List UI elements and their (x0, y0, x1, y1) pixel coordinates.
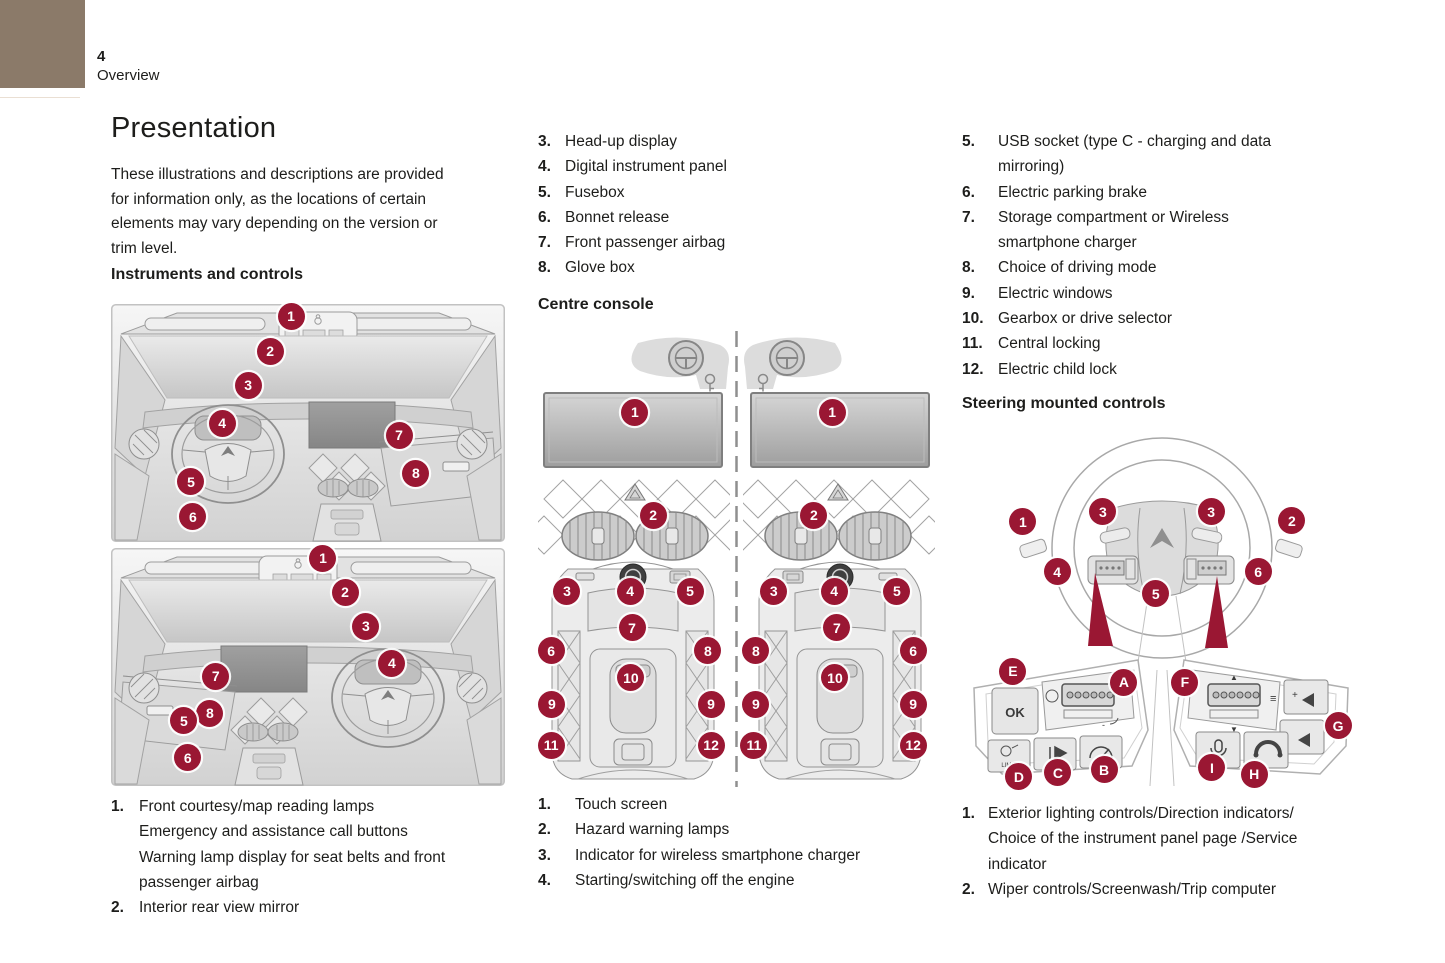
callout-8: 8 (196, 700, 223, 727)
callout-12: 12 (698, 732, 725, 759)
callout-7: 7 (823, 614, 850, 641)
legend-item: 2.Hazard warning lamps (538, 817, 938, 842)
callout-5: 5 (883, 578, 910, 605)
callout-2: 2 (332, 579, 359, 606)
console-heading: Centre console (538, 296, 654, 314)
legend-item: 3.Indicator for wireless smartphone char… (538, 843, 938, 868)
callout-4: 4 (1044, 558, 1071, 585)
legend-item: 2.Wiper controls/Screenwash/Trip compute… (962, 877, 1362, 902)
callout-9: 9 (900, 691, 927, 718)
corner-block (0, 0, 85, 88)
steering-figure: OK + - LIMIT (962, 430, 1360, 788)
callout-3: 3 (1089, 498, 1116, 525)
callout-12: 12 (900, 732, 927, 759)
callout-3: 3 (352, 613, 379, 640)
callout-3: 3 (553, 578, 580, 605)
callout-6: 6 (1245, 558, 1272, 585)
callout-8: 8 (694, 637, 721, 664)
callout-2: 2 (640, 502, 667, 529)
callout-5: 5 (177, 468, 204, 495)
legend-item: 4.Starting/switching off the engine (538, 868, 938, 893)
console-legend-5-12: 5.USB socket (type C - charging and data… (962, 129, 1362, 382)
callout-4: 4 (209, 410, 236, 437)
callout-6: 6 (538, 637, 565, 664)
instruments-heading: Instruments and controls (111, 266, 303, 284)
steering-legend: 1.Exterior lighting controls/Direction i… (962, 801, 1362, 902)
console-figure: 12345768109911121234578610991112 (538, 331, 935, 787)
callout-5: 5 (1142, 580, 1169, 607)
callout-3: 3 (1198, 498, 1225, 525)
page-number: 4 (97, 48, 105, 65)
legend-item: 7.Front passenger airbag (538, 230, 938, 255)
callout-2: 2 (257, 338, 284, 365)
callout-8: 8 (742, 637, 769, 664)
manual-page: 4 Overview Presentation These illustrati… (0, 0, 1445, 963)
callout-1: 1 (621, 399, 648, 426)
legend-item: 7.Storage compartment or Wireless smartp… (962, 205, 1362, 256)
callout-11: 11 (538, 732, 565, 759)
callout-A: A (1110, 669, 1137, 696)
callout-5: 5 (170, 707, 197, 734)
callout-4: 4 (378, 650, 405, 677)
callout-3: 3 (235, 372, 262, 399)
callout-H: H (1241, 761, 1268, 788)
callout-7: 7 (202, 663, 229, 690)
callout-E: E (999, 658, 1026, 685)
instruments-legend-1-2: 1.Front courtesy/map reading lamps Emerg… (111, 794, 511, 920)
legend-item: 8.Glove box (538, 255, 938, 280)
legend-item: 6.Bonnet release (538, 205, 938, 230)
console-callouts: 12345768109911121234578610991112 (538, 331, 935, 787)
callout-5: 5 (677, 578, 704, 605)
callout-1: 1 (278, 303, 305, 330)
legend-item: 1.Exterior lighting controls/Direction i… (962, 801, 1362, 877)
callout-8: 8 (402, 460, 429, 487)
callout-10: 10 (617, 664, 644, 691)
callout-7: 7 (619, 614, 646, 641)
callout-11: 11 (740, 732, 767, 759)
section-name: Overview (97, 67, 160, 84)
legend-item: 5.Fusebox (538, 180, 938, 205)
callout-9: 9 (698, 691, 725, 718)
callout-G: G (1325, 712, 1352, 739)
callout-6: 6 (174, 744, 201, 771)
steering-heading: Steering mounted controls (962, 395, 1166, 413)
callout-D: D (1005, 763, 1032, 790)
callout-1: 1 (1009, 508, 1036, 535)
legend-item: 1.Touch screen (538, 792, 938, 817)
legend-item: 4.Digital instrument panel (538, 154, 938, 179)
callout-4: 4 (617, 578, 644, 605)
callout-4: 4 (821, 578, 848, 605)
legend-item: 1.Front courtesy/map reading lamps Emerg… (111, 794, 511, 895)
page-title: Presentation (111, 112, 505, 145)
instruments-legend-3-8: 3.Head-up display4.Digital instrument pa… (538, 129, 938, 281)
callout-6: 6 (179, 503, 206, 530)
legend-item: 5.USB socket (type C - charging and data… (962, 129, 1362, 180)
console-legend-1-4: 1.Touch screen2.Hazard warning lamps3.In… (538, 792, 938, 893)
callout-B: B (1091, 756, 1118, 783)
steering-callouts: 1332465EAFGDCBIH (962, 430, 1360, 788)
legend-item: 8.Choice of driving mode (962, 255, 1362, 280)
header-rule (0, 97, 80, 98)
callout-6: 6 (900, 637, 927, 664)
legend-item: 6.Electric parking brake (962, 180, 1362, 205)
instruments-figure: 1234785612347856 (111, 302, 505, 788)
callout-10: 10 (821, 664, 848, 691)
callout-C: C (1044, 759, 1071, 786)
legend-item: 2.Interior rear view mirror (111, 895, 511, 920)
legend-item: 3.Head-up display (538, 129, 938, 154)
column-left: Presentation (111, 112, 505, 145)
callout-7: 7 (386, 422, 413, 449)
callout-9: 9 (742, 691, 769, 718)
legend-item: 11.Central locking (962, 331, 1362, 356)
callout-1: 1 (309, 545, 336, 572)
legend-item: 12.Electric child lock (962, 357, 1362, 382)
callout-1: 1 (819, 399, 846, 426)
callout-9: 9 (538, 691, 565, 718)
callout-2: 2 (1278, 507, 1305, 534)
callout-F: F (1171, 669, 1198, 696)
callout-2: 2 (800, 502, 827, 529)
instruments-callouts: 1234785612347856 (111, 302, 505, 788)
legend-item: 9.Electric windows (962, 281, 1362, 306)
callout-I: I (1198, 754, 1225, 781)
intro-paragraph: These illustrations and descriptions are… (111, 163, 501, 261)
legend-item: 10.Gearbox or drive selector (962, 306, 1362, 331)
callout-3: 3 (760, 578, 787, 605)
